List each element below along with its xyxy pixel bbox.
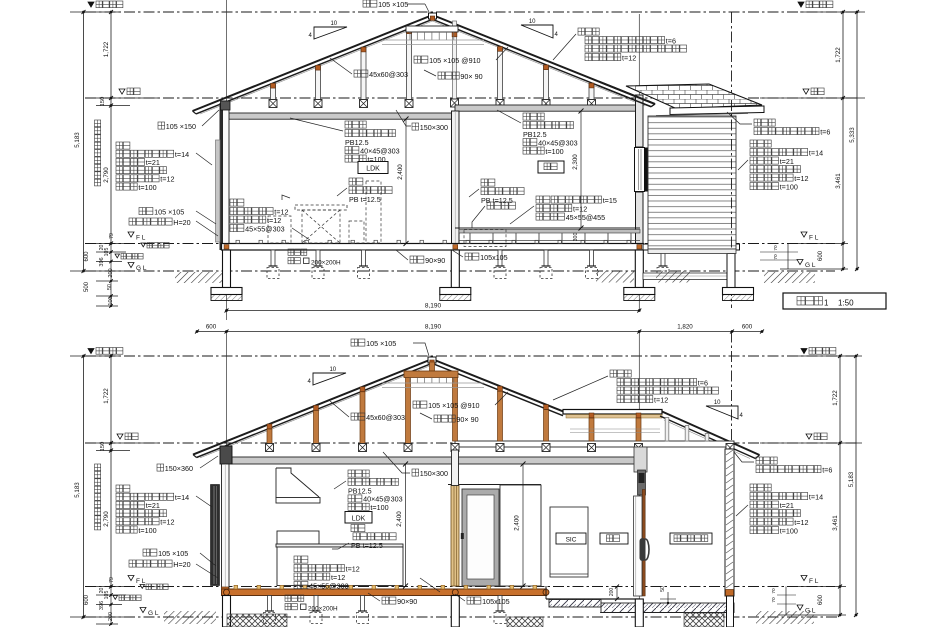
- svg-text:SIC: SIC: [566, 537, 577, 544]
- svg-text:150: 150: [100, 442, 106, 452]
- svg-text:79: 79: [109, 233, 115, 239]
- svg-text:2,400: 2,400: [397, 164, 404, 180]
- svg-text:90×90: 90×90: [425, 256, 445, 265]
- svg-text:1,820: 1,820: [677, 324, 693, 331]
- svg-text:F L: F L: [136, 578, 146, 585]
- svg-text:600: 600: [818, 250, 824, 261]
- svg-text:t=21: t=21: [780, 157, 794, 166]
- svg-text:5,183: 5,183: [848, 471, 855, 487]
- svg-text:t=100: t=100: [780, 182, 798, 191]
- svg-text:105 ×105 @910: 105 ×105 @910: [428, 401, 479, 410]
- svg-text:2,790: 2,790: [103, 167, 110, 183]
- svg-text:H=20: H=20: [173, 218, 190, 227]
- svg-text:t=100: t=100: [138, 526, 156, 535]
- svg-text:t=21: t=21: [780, 501, 794, 510]
- svg-text:H=20: H=20: [173, 560, 190, 569]
- svg-text:45×55@303: 45×55@303: [309, 581, 348, 590]
- svg-text:t=14: t=14: [175, 150, 189, 159]
- svg-text:G L: G L: [136, 265, 147, 272]
- svg-text:t=6: t=6: [822, 465, 832, 474]
- svg-text:90× 90: 90× 90: [460, 72, 482, 81]
- svg-text:t=100: t=100: [780, 526, 798, 535]
- svg-text:150×300: 150×300: [420, 469, 448, 478]
- svg-text:1,722: 1,722: [832, 390, 839, 406]
- svg-text:150×300: 150×300: [420, 123, 448, 132]
- svg-text:1:50: 1:50: [838, 299, 854, 308]
- svg-text:F L: F L: [136, 235, 146, 242]
- svg-text:t=14: t=14: [175, 493, 189, 502]
- svg-text:10: 10: [330, 21, 337, 27]
- svg-text:105x105: 105x105: [482, 597, 510, 606]
- svg-text:396: 396: [99, 601, 105, 610]
- svg-text:1,722: 1,722: [835, 47, 842, 63]
- svg-text:2,400: 2,400: [396, 511, 403, 527]
- svg-text:t=100: t=100: [138, 183, 156, 192]
- svg-text:300: 300: [573, 233, 579, 242]
- svg-text:70: 70: [773, 254, 779, 260]
- svg-text:t=6: t=6: [820, 127, 830, 136]
- svg-text:105 ×105: 105 ×105: [158, 549, 188, 558]
- svg-text:105 ×105: 105 ×105: [366, 339, 396, 348]
- svg-text:t=12: t=12: [160, 518, 174, 527]
- svg-text:t=12: t=12: [346, 564, 360, 573]
- svg-text:t=21: t=21: [146, 158, 160, 167]
- svg-text:45×55@303: 45×55@303: [245, 224, 284, 233]
- svg-text:45×55@455: 45×55@455: [566, 213, 605, 222]
- svg-text:t=14: t=14: [809, 492, 823, 501]
- svg-text:5,333: 5,333: [849, 127, 856, 143]
- svg-text:t=12: t=12: [622, 53, 636, 62]
- svg-text:105 ×105 @910: 105 ×105 @910: [429, 56, 480, 65]
- svg-text:F L: F L: [809, 235, 819, 242]
- svg-text:200×200H: 200×200H: [308, 605, 338, 612]
- svg-text:600: 600: [818, 594, 824, 605]
- svg-text:LDK: LDK: [366, 166, 380, 173]
- svg-text:396: 396: [99, 257, 105, 266]
- svg-text:2,790: 2,790: [103, 511, 110, 527]
- svg-text:10: 10: [329, 367, 336, 373]
- svg-text:t=6: t=6: [698, 378, 708, 387]
- svg-text:2,300: 2,300: [572, 154, 579, 170]
- svg-text:t=12: t=12: [654, 395, 668, 404]
- svg-text:t=14: t=14: [809, 148, 823, 157]
- svg-text:G L: G L: [805, 608, 816, 615]
- svg-text:50: 50: [107, 284, 113, 290]
- svg-text:5,183: 5,183: [74, 132, 81, 148]
- svg-text:200: 200: [108, 612, 114, 621]
- svg-text:50: 50: [660, 586, 666, 592]
- svg-text:105x105: 105x105: [480, 253, 508, 262]
- svg-text:150: 150: [100, 97, 106, 107]
- svg-text:70: 70: [771, 597, 777, 603]
- svg-text:150×360: 150×360: [165, 464, 193, 473]
- svg-text:200×200H: 200×200H: [311, 259, 341, 266]
- svg-text:70: 70: [771, 588, 777, 594]
- svg-text:PB t=12.5: PB t=12.5: [349, 195, 381, 204]
- svg-text:90× 90: 90× 90: [456, 415, 478, 424]
- svg-text:1: 1: [824, 299, 829, 308]
- svg-text:3,461: 3,461: [832, 515, 839, 531]
- svg-text:10: 10: [529, 19, 536, 25]
- svg-text:200: 200: [609, 588, 615, 597]
- svg-text:3,461: 3,461: [835, 173, 842, 189]
- svg-text:2,400: 2,400: [514, 515, 521, 531]
- svg-text:600: 600: [206, 324, 217, 331]
- svg-text:1,722: 1,722: [103, 388, 110, 404]
- svg-text:45x60@303: 45x60@303: [369, 70, 408, 79]
- svg-text:t=100: t=100: [545, 147, 563, 156]
- svg-text:600: 600: [84, 594, 90, 605]
- svg-text:8,190: 8,190: [425, 324, 442, 331]
- svg-text:105: 105: [104, 591, 110, 600]
- svg-text:t=15: t=15: [603, 196, 617, 205]
- svg-text:105 ×105: 105 ×105: [154, 207, 184, 216]
- svg-text:t=12: t=12: [160, 175, 174, 184]
- svg-text:t=21: t=21: [146, 501, 160, 510]
- svg-text:500: 500: [84, 281, 90, 292]
- svg-text:90×90: 90×90: [397, 597, 417, 606]
- svg-text:1,722: 1,722: [103, 41, 110, 57]
- svg-text:t=6: t=6: [666, 36, 676, 45]
- svg-text:200: 200: [108, 268, 114, 277]
- svg-text:105: 105: [104, 248, 110, 257]
- svg-text:79: 79: [109, 577, 115, 583]
- svg-text:8,190: 8,190: [425, 303, 442, 310]
- svg-text:F L: F L: [809, 578, 819, 585]
- svg-text:100: 100: [108, 296, 114, 305]
- svg-text:105 ×105: 105 ×105: [378, 0, 408, 9]
- svg-text:G L: G L: [805, 262, 816, 269]
- svg-text:LDK: LDK: [352, 516, 366, 523]
- svg-text:10: 10: [714, 400, 721, 406]
- svg-text:600: 600: [742, 324, 753, 331]
- svg-text:600: 600: [84, 251, 90, 262]
- svg-text:70: 70: [773, 245, 779, 251]
- svg-text:5,183: 5,183: [74, 482, 81, 498]
- svg-text:PB t=12.5: PB t=12.5: [351, 541, 383, 550]
- svg-text:105 ×150: 105 ×150: [166, 122, 196, 131]
- svg-text:t=100: t=100: [370, 503, 388, 512]
- svg-text:G L: G L: [148, 610, 159, 617]
- svg-text:45x60@303: 45x60@303: [366, 413, 405, 422]
